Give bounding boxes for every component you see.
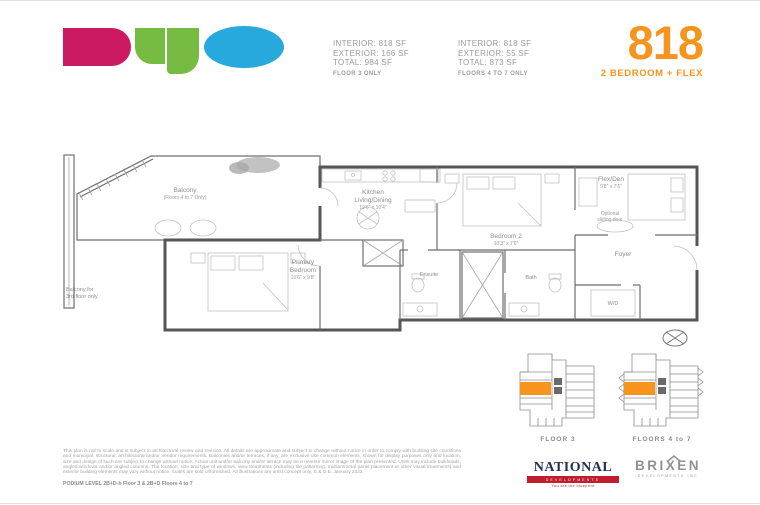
exterior-sf: EXTERIOR: 55 SF	[458, 49, 578, 59]
wd-label: W/D	[608, 301, 619, 307]
bath-label: Bath	[525, 275, 536, 281]
brixen-roof-icon	[667, 455, 681, 462]
washer-dryer: W/D	[591, 290, 635, 316]
foyer-label: Foyer	[615, 251, 632, 258]
balcony-chair	[190, 220, 216, 236]
balcony-chair	[155, 220, 181, 236]
brixen-logo: BRIXEN DEVELOPMENTS INC	[628, 459, 708, 478]
duo-logo-o-shape	[204, 26, 284, 68]
brixen-sub: DEVELOPMENTS INC	[628, 474, 708, 478]
kitchen-label-2: Living/Dining	[354, 197, 392, 204]
duo-logo-u-left-shape	[135, 28, 165, 64]
keyplan-floors4to7	[612, 352, 712, 439]
national-wordmark: NATIONAL	[527, 461, 619, 475]
bedroom2-label: Bedroom 2	[490, 233, 522, 240]
podium-note: PODIUM LEVEL 2B+D-b Floor 3 & 2B+D Floor…	[63, 481, 463, 487]
balcony-side-note-1: Balcony for	[66, 287, 94, 293]
highlighted-unit	[624, 382, 655, 395]
ensuite-label: Ensuite	[420, 272, 438, 278]
legal-disclaimer: This plan is not to scale and is subject…	[63, 449, 461, 475]
kitchen-dims: 19'6" x 10'4"	[359, 205, 387, 211]
floorplan-sheet: { "header": { "brand": "DUO", "logo_colo…	[0, 0, 760, 505]
bedroom2-bed	[445, 174, 559, 226]
page-top-edge	[0, 0, 760, 1]
balcony-note: (Floors 4 to 7 Only)	[164, 195, 207, 201]
floorplan-svg: W/D Balcony (Floors 4 to 7 Only) Balcony…	[63, 148, 703, 333]
balcony-left-strip	[64, 155, 74, 308]
spec-block-floor3: INTERIOR: 818 SF EXTERIOR: 166 SF TOTAL:…	[333, 39, 453, 79]
highlighted-unit	[520, 382, 551, 395]
total-sf: TOTAL: 873 SF	[458, 58, 578, 68]
primary-label-2: Bedroom	[290, 267, 316, 274]
compass-icon	[658, 326, 692, 352]
flex-furniture	[579, 174, 685, 232]
duo-logo-u-right-shape	[167, 28, 199, 74]
kitchen-counters	[322, 169, 440, 182]
primary-bed	[191, 253, 305, 311]
duo-logo	[63, 25, 284, 75]
primary-label-1: Primary	[292, 259, 315, 266]
duo-logo-d-shape	[63, 28, 131, 66]
balcony-label: Balcony	[173, 187, 197, 194]
flex-label: Flex/Den	[598, 176, 624, 183]
primary-dims: 10'6" x 9'8"	[291, 275, 316, 281]
shower-box	[462, 252, 503, 318]
balcony-side-note-2: 3rd floor only	[66, 294, 98, 300]
keyplan-floor3	[508, 352, 608, 439]
page-bottom-edge	[0, 503, 760, 504]
keyplan-floors4to7-label: FLOORS 4 to 7	[612, 436, 712, 443]
flex-dims: 9'8" x 7'6"	[600, 184, 622, 190]
keyplan-floor3-label: FLOOR 3	[508, 436, 608, 443]
closet-box	[363, 240, 403, 266]
bedroom2-dims: 10'3" x 7'6"	[494, 241, 519, 247]
exterior-sf: EXTERIOR: 166 SF	[333, 49, 453, 59]
kitchen-label-1: Kitchen	[362, 189, 384, 196]
sofa	[405, 200, 435, 212]
unit-type: 2 BEDROOM + FLEX	[540, 68, 703, 79]
national-developments-logo: NATIONAL DEVELOPMENTS You are the bluepr…	[527, 461, 619, 488]
floors-note: FLOOR 3 ONLY	[333, 70, 453, 80]
interior-sf: INTERIOR: 818 SF	[333, 39, 453, 49]
total-sf: TOTAL: 984 SF	[333, 58, 453, 68]
unit-number: 818	[566, 20, 703, 66]
interior-sf: INTERIOR: 818 SF	[458, 39, 578, 49]
national-developments-band: DEVELOPMENTS	[527, 476, 619, 483]
optional-door-2: sliding door	[597, 217, 623, 223]
ensuite-fixtures	[403, 274, 437, 316]
national-tagline: You are the blueprint	[527, 484, 619, 488]
